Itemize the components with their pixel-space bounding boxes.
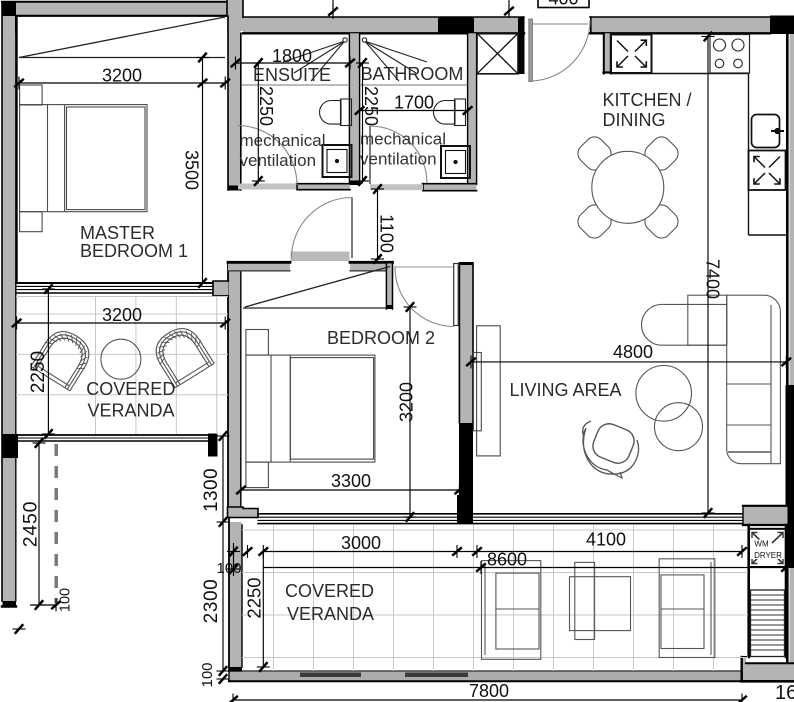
svg-text:DRYER: DRYER <box>754 551 782 560</box>
svg-text:3200: 3200 <box>102 305 142 325</box>
svg-text:1800: 1800 <box>272 46 312 66</box>
svg-text:2250: 2250 <box>361 86 381 126</box>
svg-text:2450: 2450 <box>19 501 41 548</box>
svg-text:3000: 3000 <box>341 533 381 553</box>
svg-text:COVERED: COVERED <box>86 379 175 399</box>
svg-text:4800: 4800 <box>613 342 653 362</box>
svg-text:MASTER: MASTER <box>80 223 155 243</box>
svg-text:VERANDA: VERANDA <box>287 604 374 624</box>
svg-text:BATHROOM: BATHROOM <box>361 64 464 84</box>
svg-text:1700: 1700 <box>394 93 434 113</box>
svg-text:1100: 1100 <box>377 214 397 253</box>
svg-text:1300: 1300 <box>201 468 222 512</box>
svg-text:COVERED: COVERED <box>285 581 374 601</box>
svg-text:3300: 3300 <box>331 471 371 491</box>
svg-text:ENSUITE: ENSUITE <box>253 65 331 85</box>
svg-text:VERANDA: VERANDA <box>88 401 175 421</box>
svg-text:mechanical: mechanical <box>360 130 446 149</box>
svg-text:ventilation: ventilation <box>360 150 437 169</box>
svg-text:KITCHEN /: KITCHEN / <box>603 90 692 110</box>
svg-text:4100: 4100 <box>586 530 626 550</box>
svg-text:2250: 2250 <box>256 86 276 126</box>
svg-text:7400: 7400 <box>703 259 723 299</box>
svg-text:400: 400 <box>548 0 578 9</box>
svg-text:7800: 7800 <box>469 681 509 701</box>
svg-text:BEDROOM 1: BEDROOM 1 <box>80 241 188 261</box>
svg-text:3200: 3200 <box>102 66 142 86</box>
svg-text:8600: 8600 <box>487 550 527 570</box>
svg-text:3200: 3200 <box>396 382 416 422</box>
svg-text:mechanical: mechanical <box>240 131 326 150</box>
svg-text:LIVING AREA: LIVING AREA <box>509 380 621 400</box>
svg-text:100: 100 <box>58 588 74 612</box>
svg-text:DINING: DINING <box>603 110 666 130</box>
svg-text:2300: 2300 <box>201 579 222 624</box>
svg-text:2250: 2250 <box>28 351 49 393</box>
svg-text:BEDROOM 2: BEDROOM 2 <box>327 328 435 348</box>
svg-text:100: 100 <box>216 560 241 577</box>
svg-text:ventilation: ventilation <box>240 151 317 170</box>
svg-text:3500: 3500 <box>182 150 202 190</box>
svg-text:2250: 2250 <box>243 577 264 618</box>
svg-text:16: 16 <box>775 682 794 702</box>
svg-text:100: 100 <box>199 662 216 687</box>
svg-text:WM: WM <box>754 540 769 549</box>
